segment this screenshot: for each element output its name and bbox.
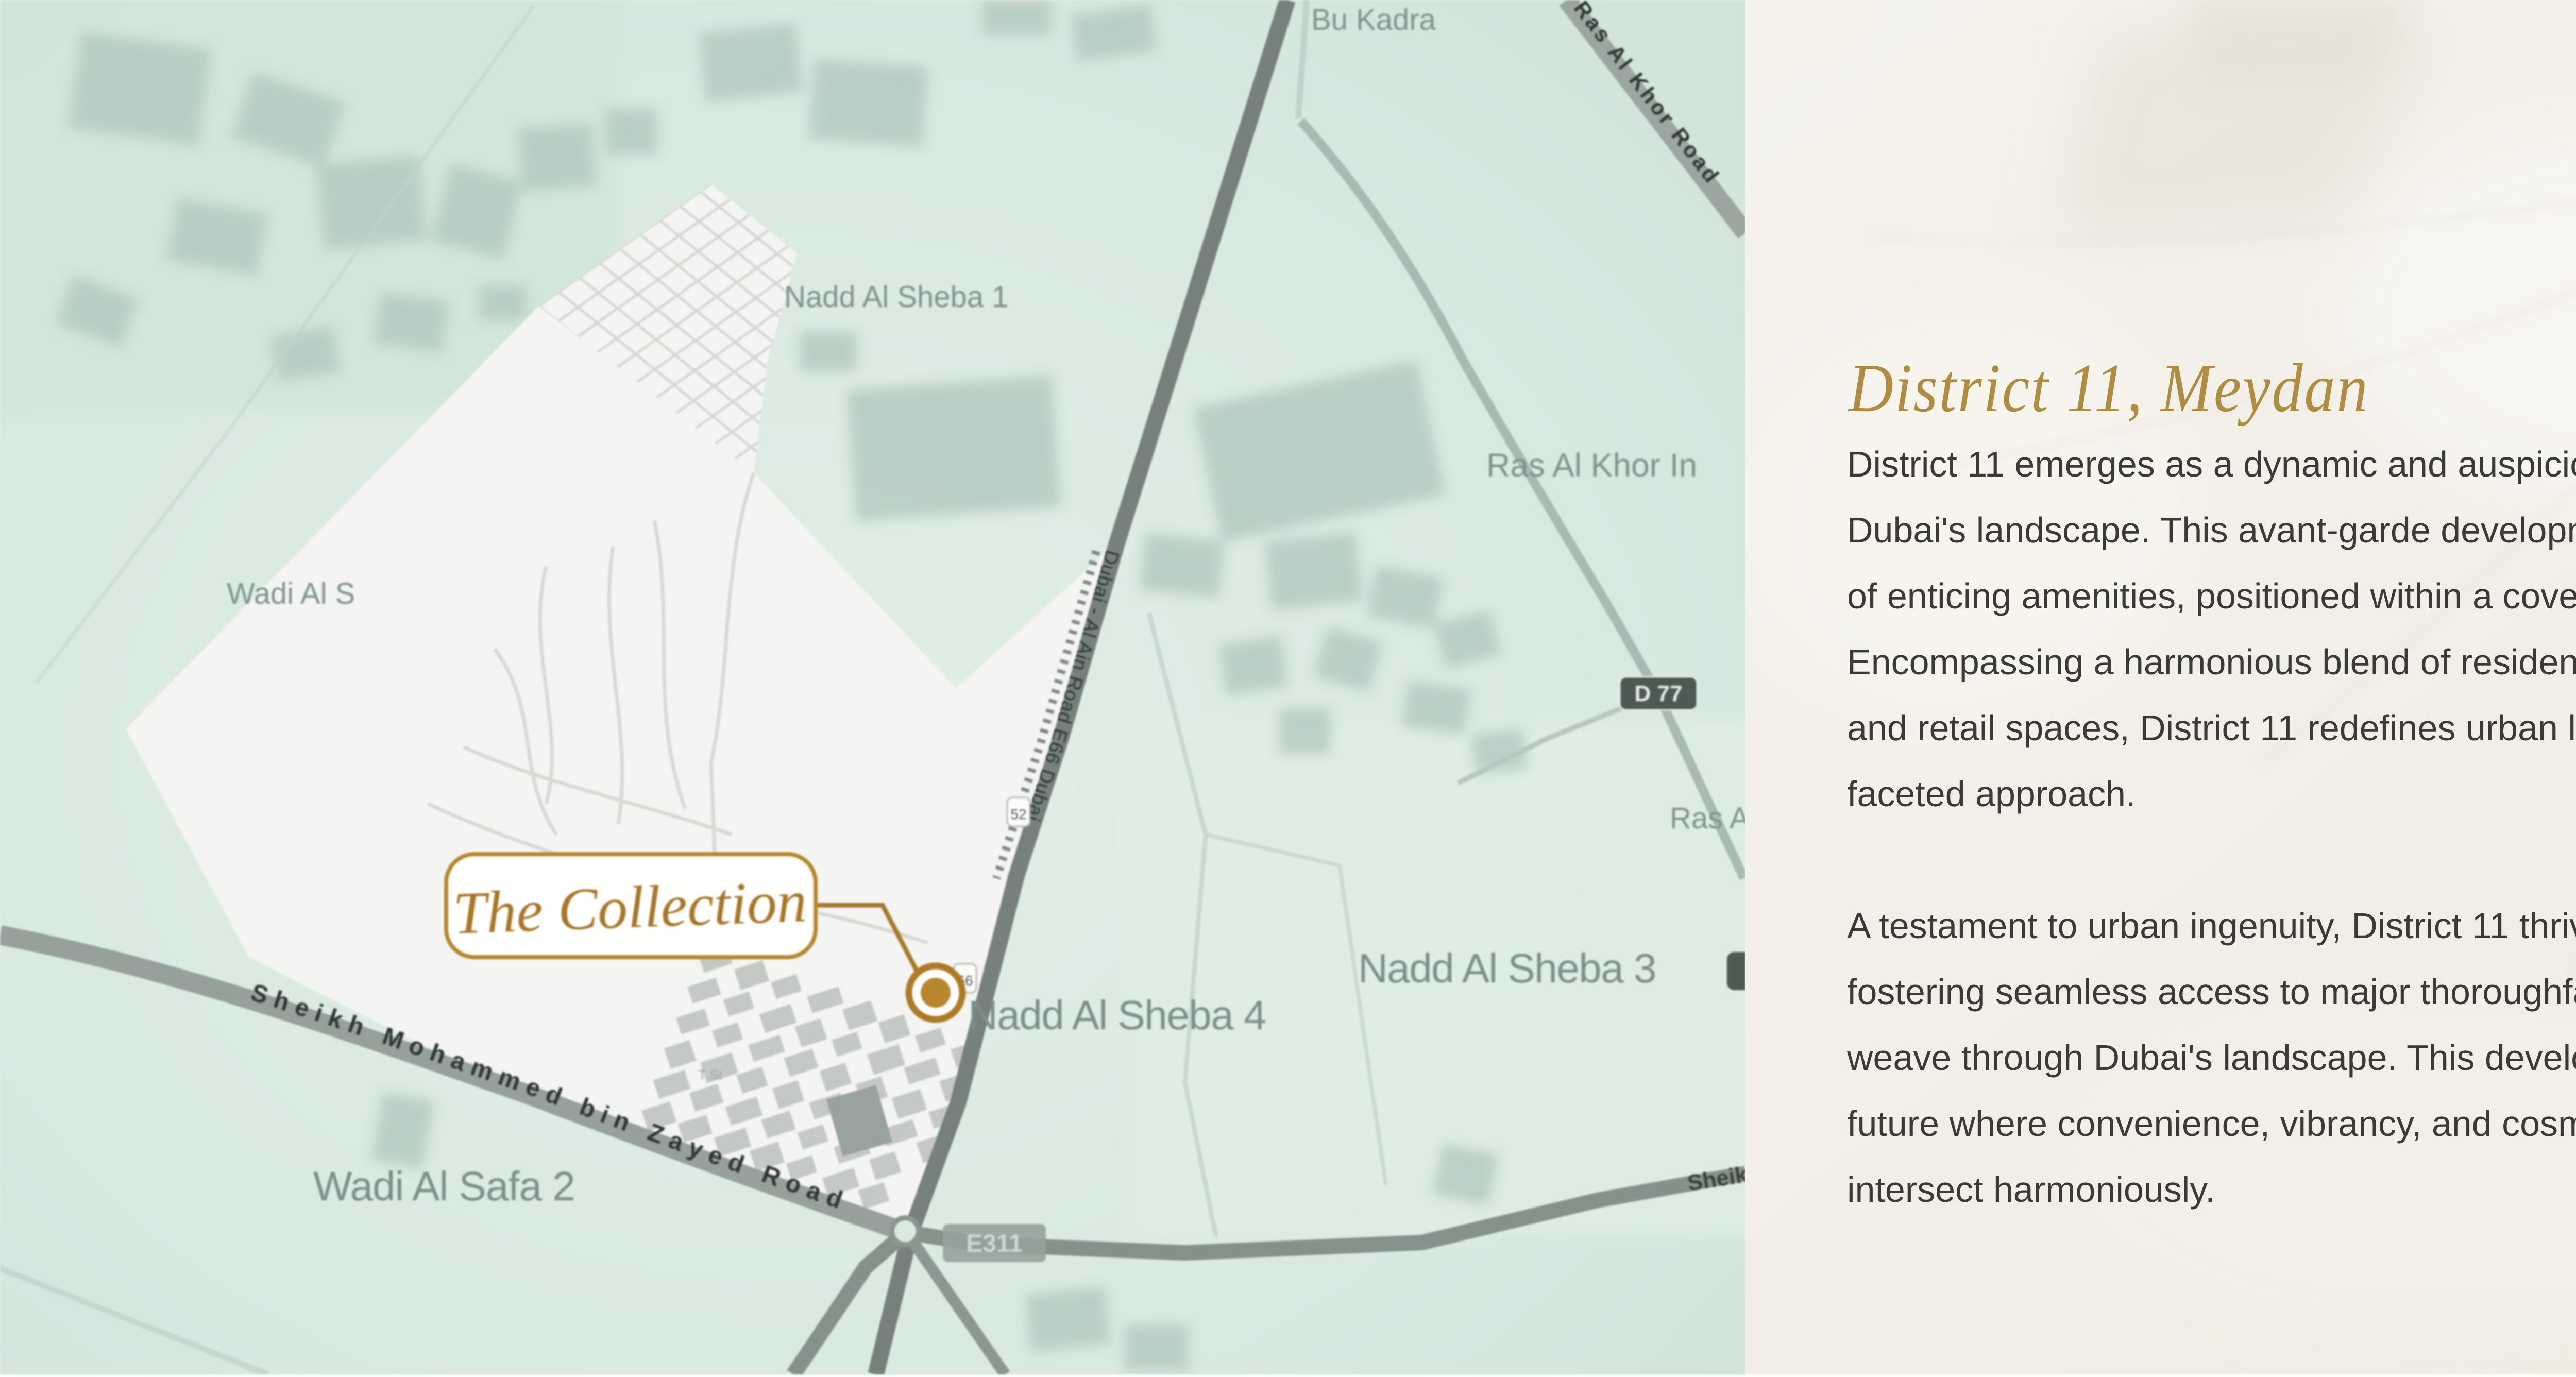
svg-text:Ras A: Ras A	[1670, 802, 1745, 835]
svg-text:Ras Al Khor In: Ras Al Khor In	[1486, 447, 1697, 484]
svg-text:Nadd Al Sheba 4: Nadd Al Sheba 4	[968, 992, 1266, 1038]
svg-text:D 77: D 77	[1635, 681, 1683, 706]
svg-text:Wadi Al S: Wadi Al S	[227, 577, 355, 610]
svg-text:Nadd Al Sheba 3: Nadd Al Sheba 3	[1358, 945, 1656, 991]
svg-text:T St: T St	[698, 1067, 723, 1082]
svg-text:52: 52	[1010, 806, 1026, 822]
svg-text:Nadd Al Sheba 1: Nadd Al Sheba 1	[784, 280, 1008, 314]
svg-text:E311: E311	[966, 1230, 1022, 1257]
svg-text:Wadi Al Safa 2: Wadi Al Safa 2	[313, 1163, 575, 1209]
svg-text:The Collection: The Collection	[452, 869, 808, 947]
svg-text:Bu Kadra: Bu Kadra	[1311, 3, 1436, 37]
